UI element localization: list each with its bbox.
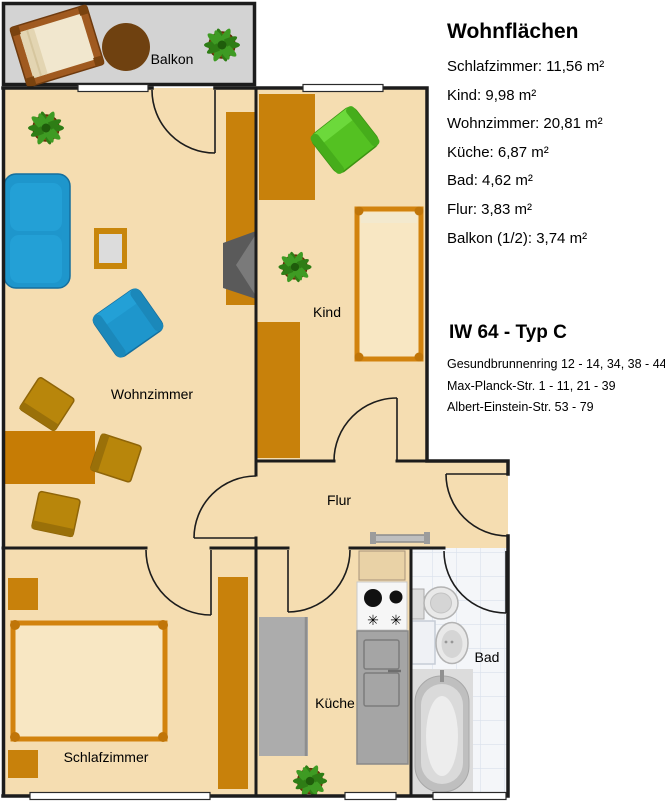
room-balkon: Balkon: [4, 4, 255, 88]
room-label-kueche: Küche: [315, 695, 355, 711]
kitchen-worktop: [359, 551, 405, 580]
legend-item: Balkon (1/2): 3,74 m²: [447, 225, 662, 254]
legend-item: Küche: 6,87 m²: [447, 139, 662, 168]
room-label-bad: Bad: [475, 649, 500, 665]
address-line: Albert-Einstein-Str. 53 - 79: [447, 397, 665, 419]
floorplan-page: { "legend": { "title": "Wohnflächen", "i…: [0, 0, 665, 806]
sofa: [4, 174, 70, 288]
legend-item: Kind: 9,98 m²: [447, 82, 662, 111]
sink: [436, 623, 468, 664]
nightstand: [8, 750, 38, 778]
nightstand: [8, 578, 38, 610]
floorplan-drawing: Balkon: [0, 0, 513, 806]
legend-item: Wohnzimmer: 20,81 m²: [447, 110, 662, 139]
room-label-kind: Kind: [313, 304, 341, 320]
balcony-table: [102, 23, 150, 71]
room-label-balkon: Balkon: [151, 51, 194, 67]
window: [433, 793, 506, 800]
address-line: Gesundbrunnenring 12 - 14, 34, 38 - 44: [447, 354, 665, 376]
wardrobe: [259, 94, 315, 200]
window: [30, 793, 210, 800]
legend-item: Bad: 4,62 m²: [447, 167, 662, 196]
fridge: [357, 631, 408, 764]
burner-icon: ✳: [367, 612, 379, 628]
bed-double: [10, 620, 168, 742]
room-label-schlafzimmer: Schlafzimmer: [64, 749, 149, 765]
bathtub: [411, 669, 473, 797]
window: [303, 85, 383, 92]
room-label-wohnzimmer: Wohnzimmer: [111, 386, 194, 402]
chair: [32, 491, 81, 537]
room-label-flur: Flur: [327, 492, 351, 508]
bed-single: [355, 207, 424, 362]
wardrobe: [218, 577, 248, 789]
toilet: [412, 587, 458, 619]
kitchen-counter: [259, 617, 308, 756]
wardrobe: [257, 322, 300, 458]
building-title: IW 64 - Typ C: [449, 322, 665, 344]
dining-table: [2, 431, 95, 484]
legend-panel: Wohnflächen Schlafzimmer: 11,56 m² Kind:…: [447, 20, 662, 253]
window: [345, 793, 396, 800]
bath-cabinet: [412, 621, 435, 664]
building-info: IW 64 - Typ C Gesundbrunnenring 12 - 14,…: [447, 322, 665, 419]
stove: ✳ ✳: [357, 582, 407, 630]
side-table: [94, 228, 127, 269]
legend-item: Flur: 3,83 m²: [447, 196, 662, 225]
window: [78, 85, 148, 92]
address-line: Max-Planck-Str. 1 - 11, 21 - 39: [447, 376, 665, 398]
burner-icon: ✳: [390, 612, 402, 628]
legend-title: Wohnflächen: [447, 20, 662, 44]
legend-item: Schlafzimmer: 11,56 m²: [447, 53, 662, 82]
